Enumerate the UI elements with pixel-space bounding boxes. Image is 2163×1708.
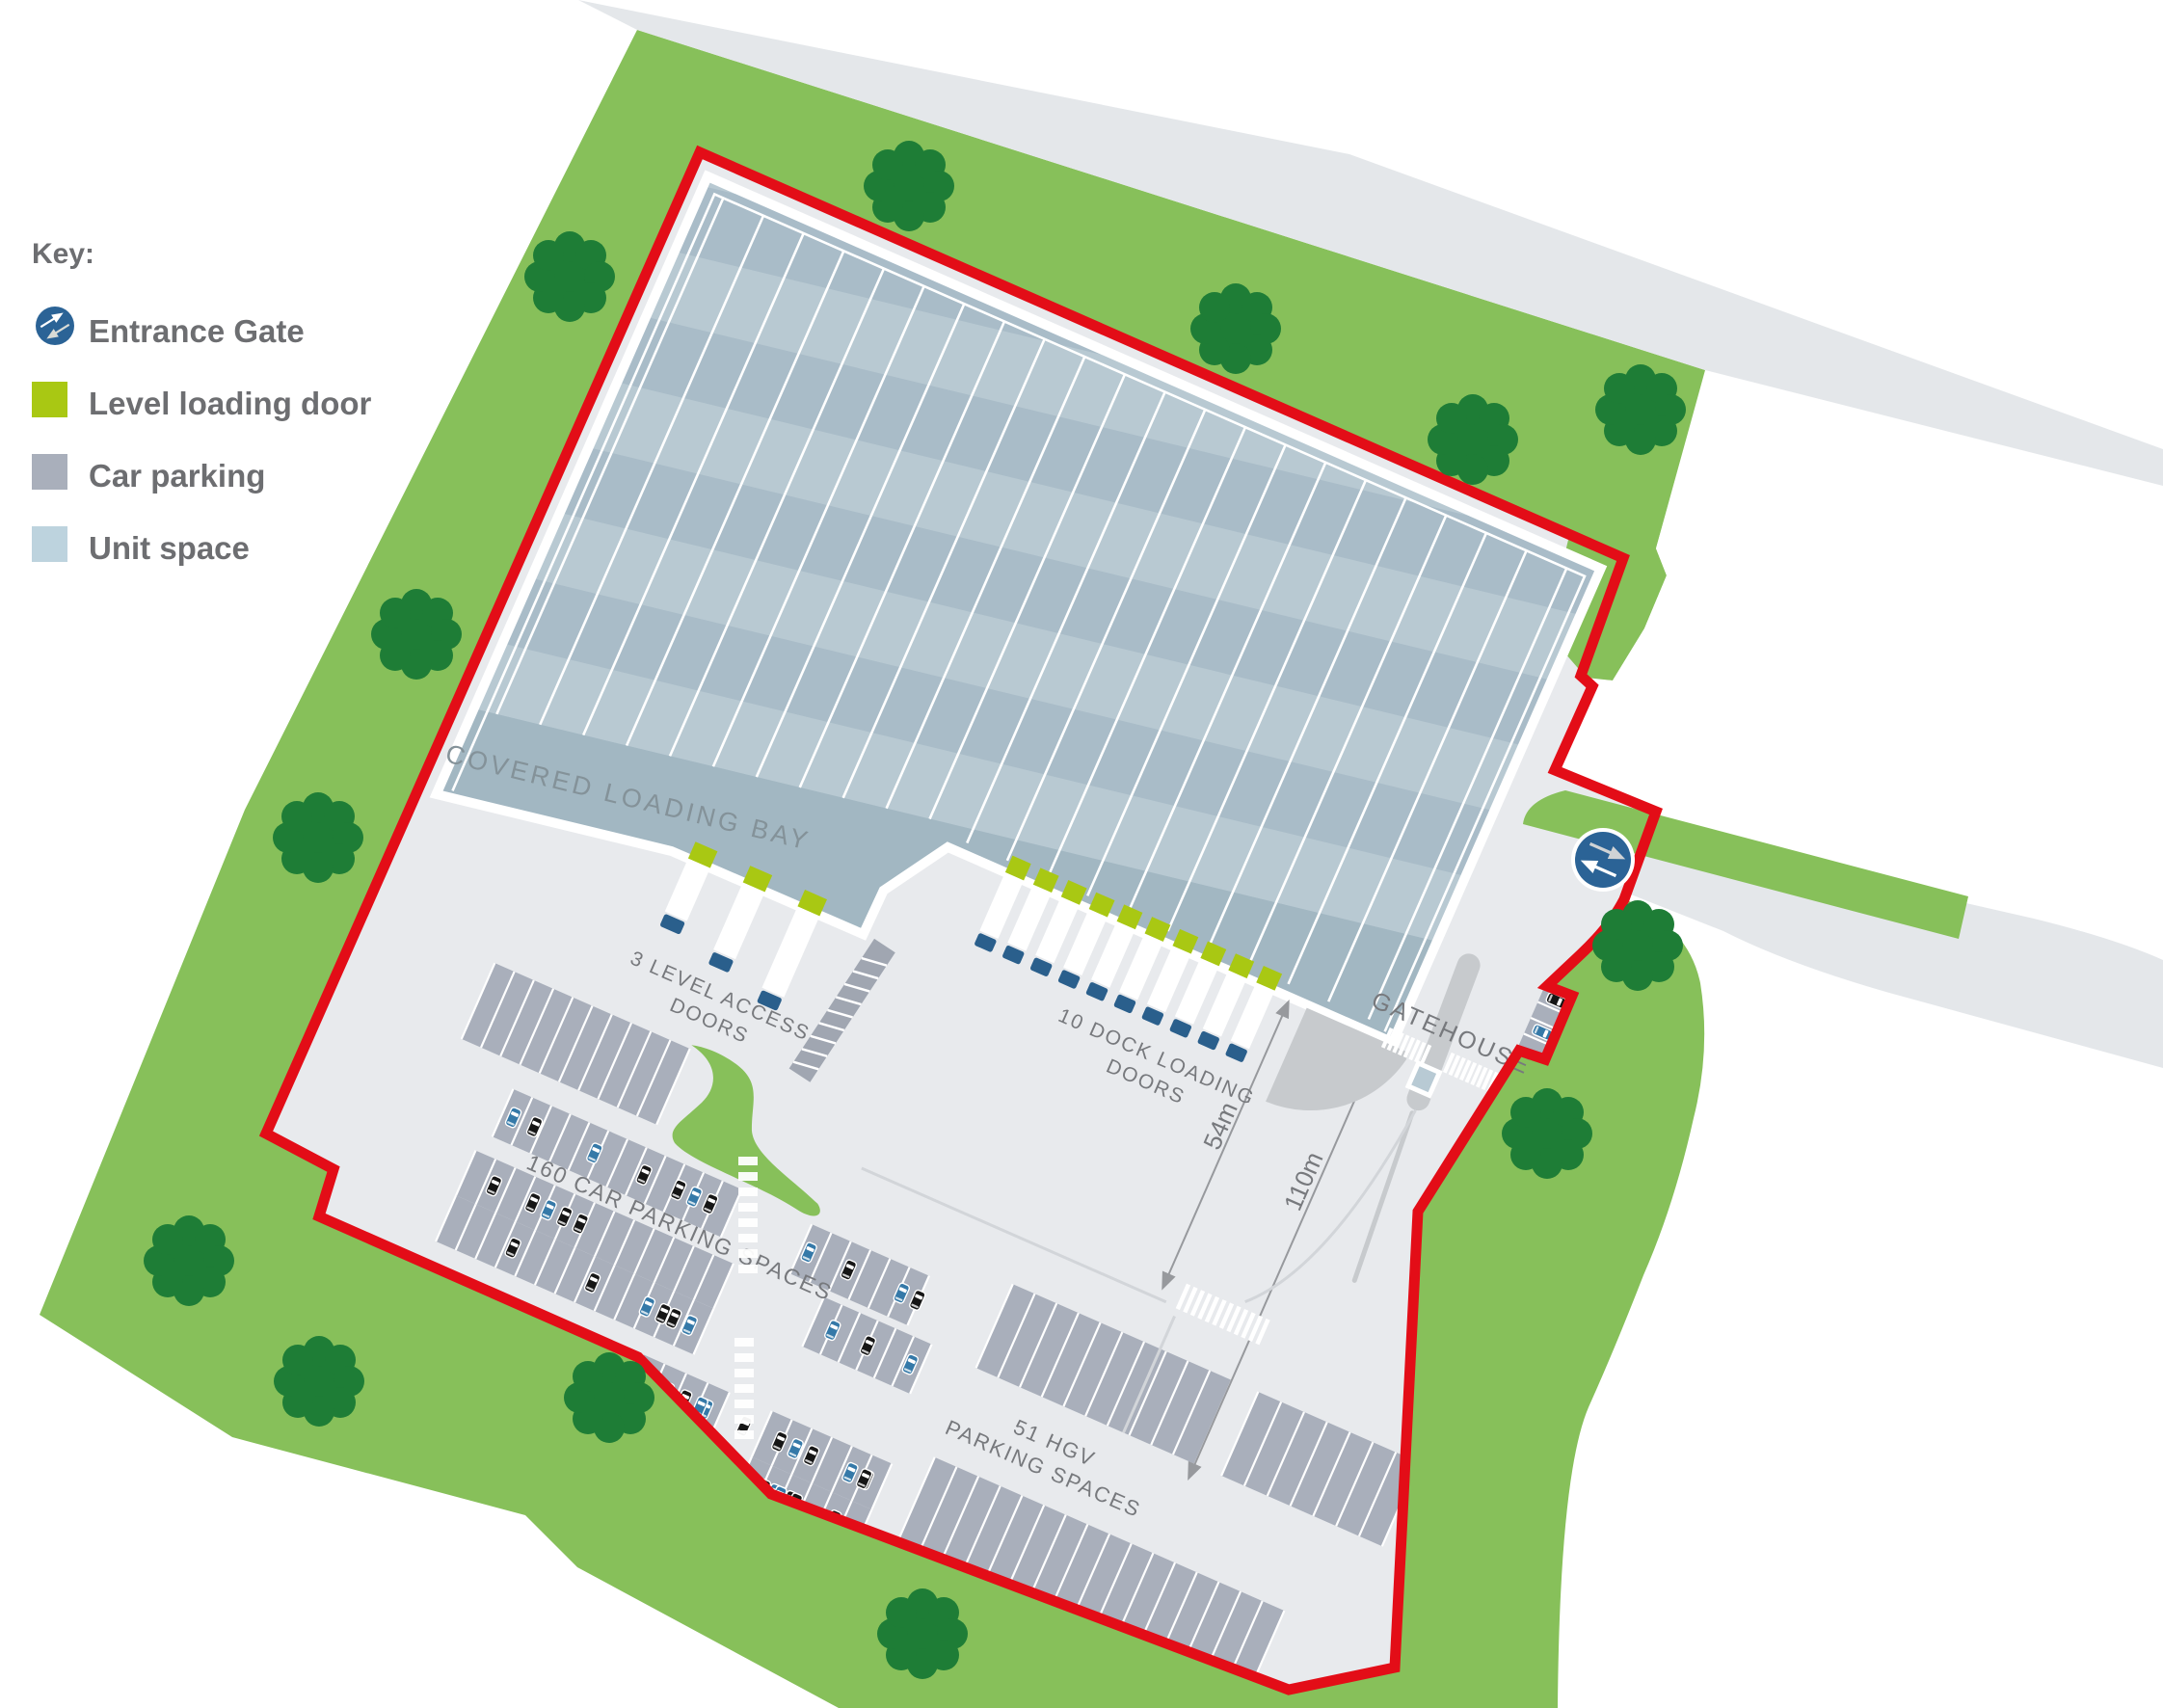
svg-text:Car parking: Car parking bbox=[89, 458, 265, 494]
svg-text:Level loading door: Level loading door bbox=[89, 386, 372, 421]
svg-text:Key:: Key: bbox=[32, 238, 94, 270]
svg-text:Unit space: Unit space bbox=[89, 530, 250, 566]
svg-text:Entrance Gate: Entrance Gate bbox=[89, 313, 305, 349]
